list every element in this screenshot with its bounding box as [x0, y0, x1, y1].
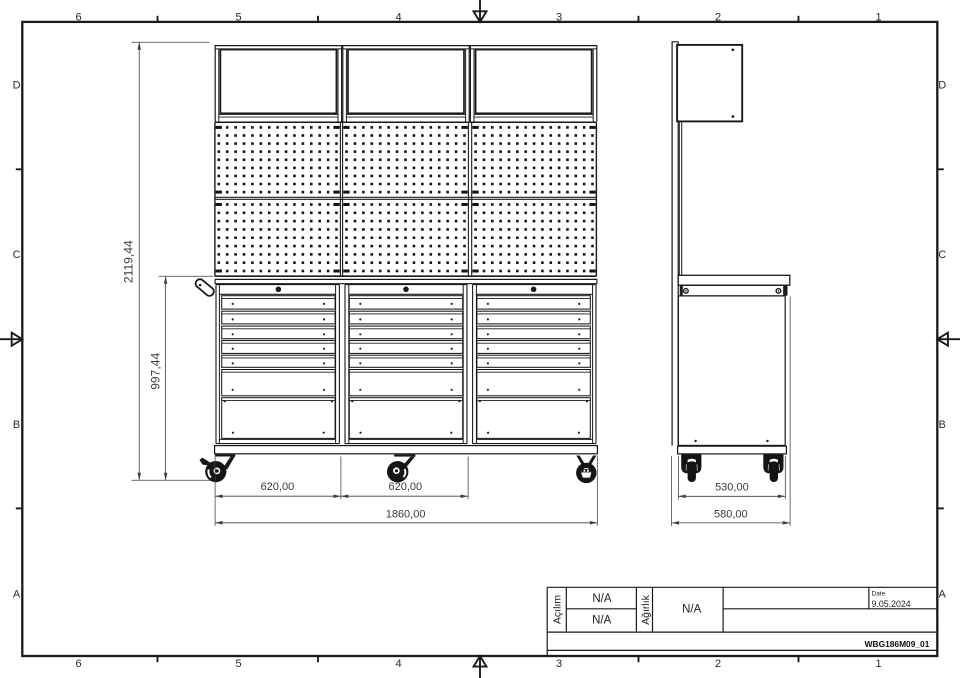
svg-text:3: 3 — [556, 658, 562, 670]
svg-text:5: 5 — [235, 12, 241, 24]
svg-text:B: B — [939, 419, 946, 431]
svg-text:WBG186M09_01: WBG186M09_01 — [865, 639, 930, 649]
svg-text:620,00: 620,00 — [261, 481, 295, 493]
svg-text:9.05.2024: 9.05.2024 — [872, 599, 911, 609]
svg-text:D: D — [938, 79, 946, 91]
svg-text:N/A: N/A — [682, 603, 702, 615]
svg-text:4: 4 — [395, 12, 401, 24]
svg-text:3: 3 — [556, 12, 562, 24]
svg-text:2: 2 — [715, 658, 721, 670]
svg-text:C: C — [938, 249, 946, 261]
svg-text:A: A — [939, 589, 947, 601]
svg-text:6: 6 — [75, 658, 81, 670]
svg-text:1: 1 — [875, 12, 881, 24]
svg-text:A: A — [13, 589, 21, 601]
svg-text:Date: Date — [872, 591, 886, 598]
svg-text:5: 5 — [235, 658, 241, 670]
svg-text:1: 1 — [875, 658, 881, 670]
svg-text:B: B — [13, 419, 20, 431]
svg-text:N/A: N/A — [592, 593, 612, 605]
svg-text:620,00: 620,00 — [388, 481, 422, 493]
svg-text:C: C — [13, 249, 21, 261]
svg-text:6: 6 — [75, 12, 81, 24]
svg-text:D: D — [13, 79, 21, 91]
svg-text:2119,44: 2119,44 — [121, 240, 135, 283]
svg-text:Ağırlık: Ağırlık — [640, 594, 652, 625]
svg-text:4: 4 — [395, 658, 401, 670]
svg-text:Açılım: Açılım — [551, 595, 563, 624]
svg-text:1860,00: 1860,00 — [386, 509, 426, 521]
svg-text:2: 2 — [715, 12, 721, 24]
svg-text:530,00: 530,00 — [715, 481, 749, 493]
svg-text:580,00: 580,00 — [714, 509, 748, 521]
svg-text:997,44: 997,44 — [149, 353, 163, 390]
svg-text:N/A: N/A — [592, 615, 612, 627]
